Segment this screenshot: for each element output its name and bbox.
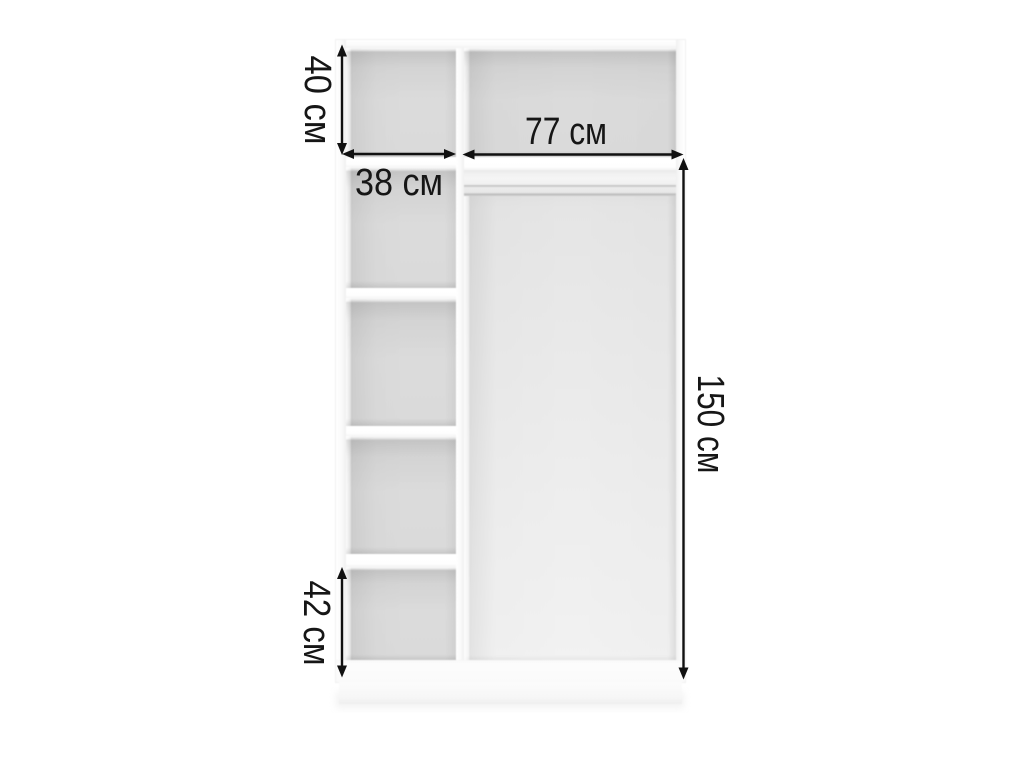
svg-text:42 см: 42 см xyxy=(295,581,337,666)
svg-text:38 см: 38 см xyxy=(355,162,443,204)
svg-text:77 см: 77 см xyxy=(525,111,607,153)
svg-text:40 см: 40 см xyxy=(296,56,338,145)
svg-text:150 см: 150 см xyxy=(689,375,731,474)
